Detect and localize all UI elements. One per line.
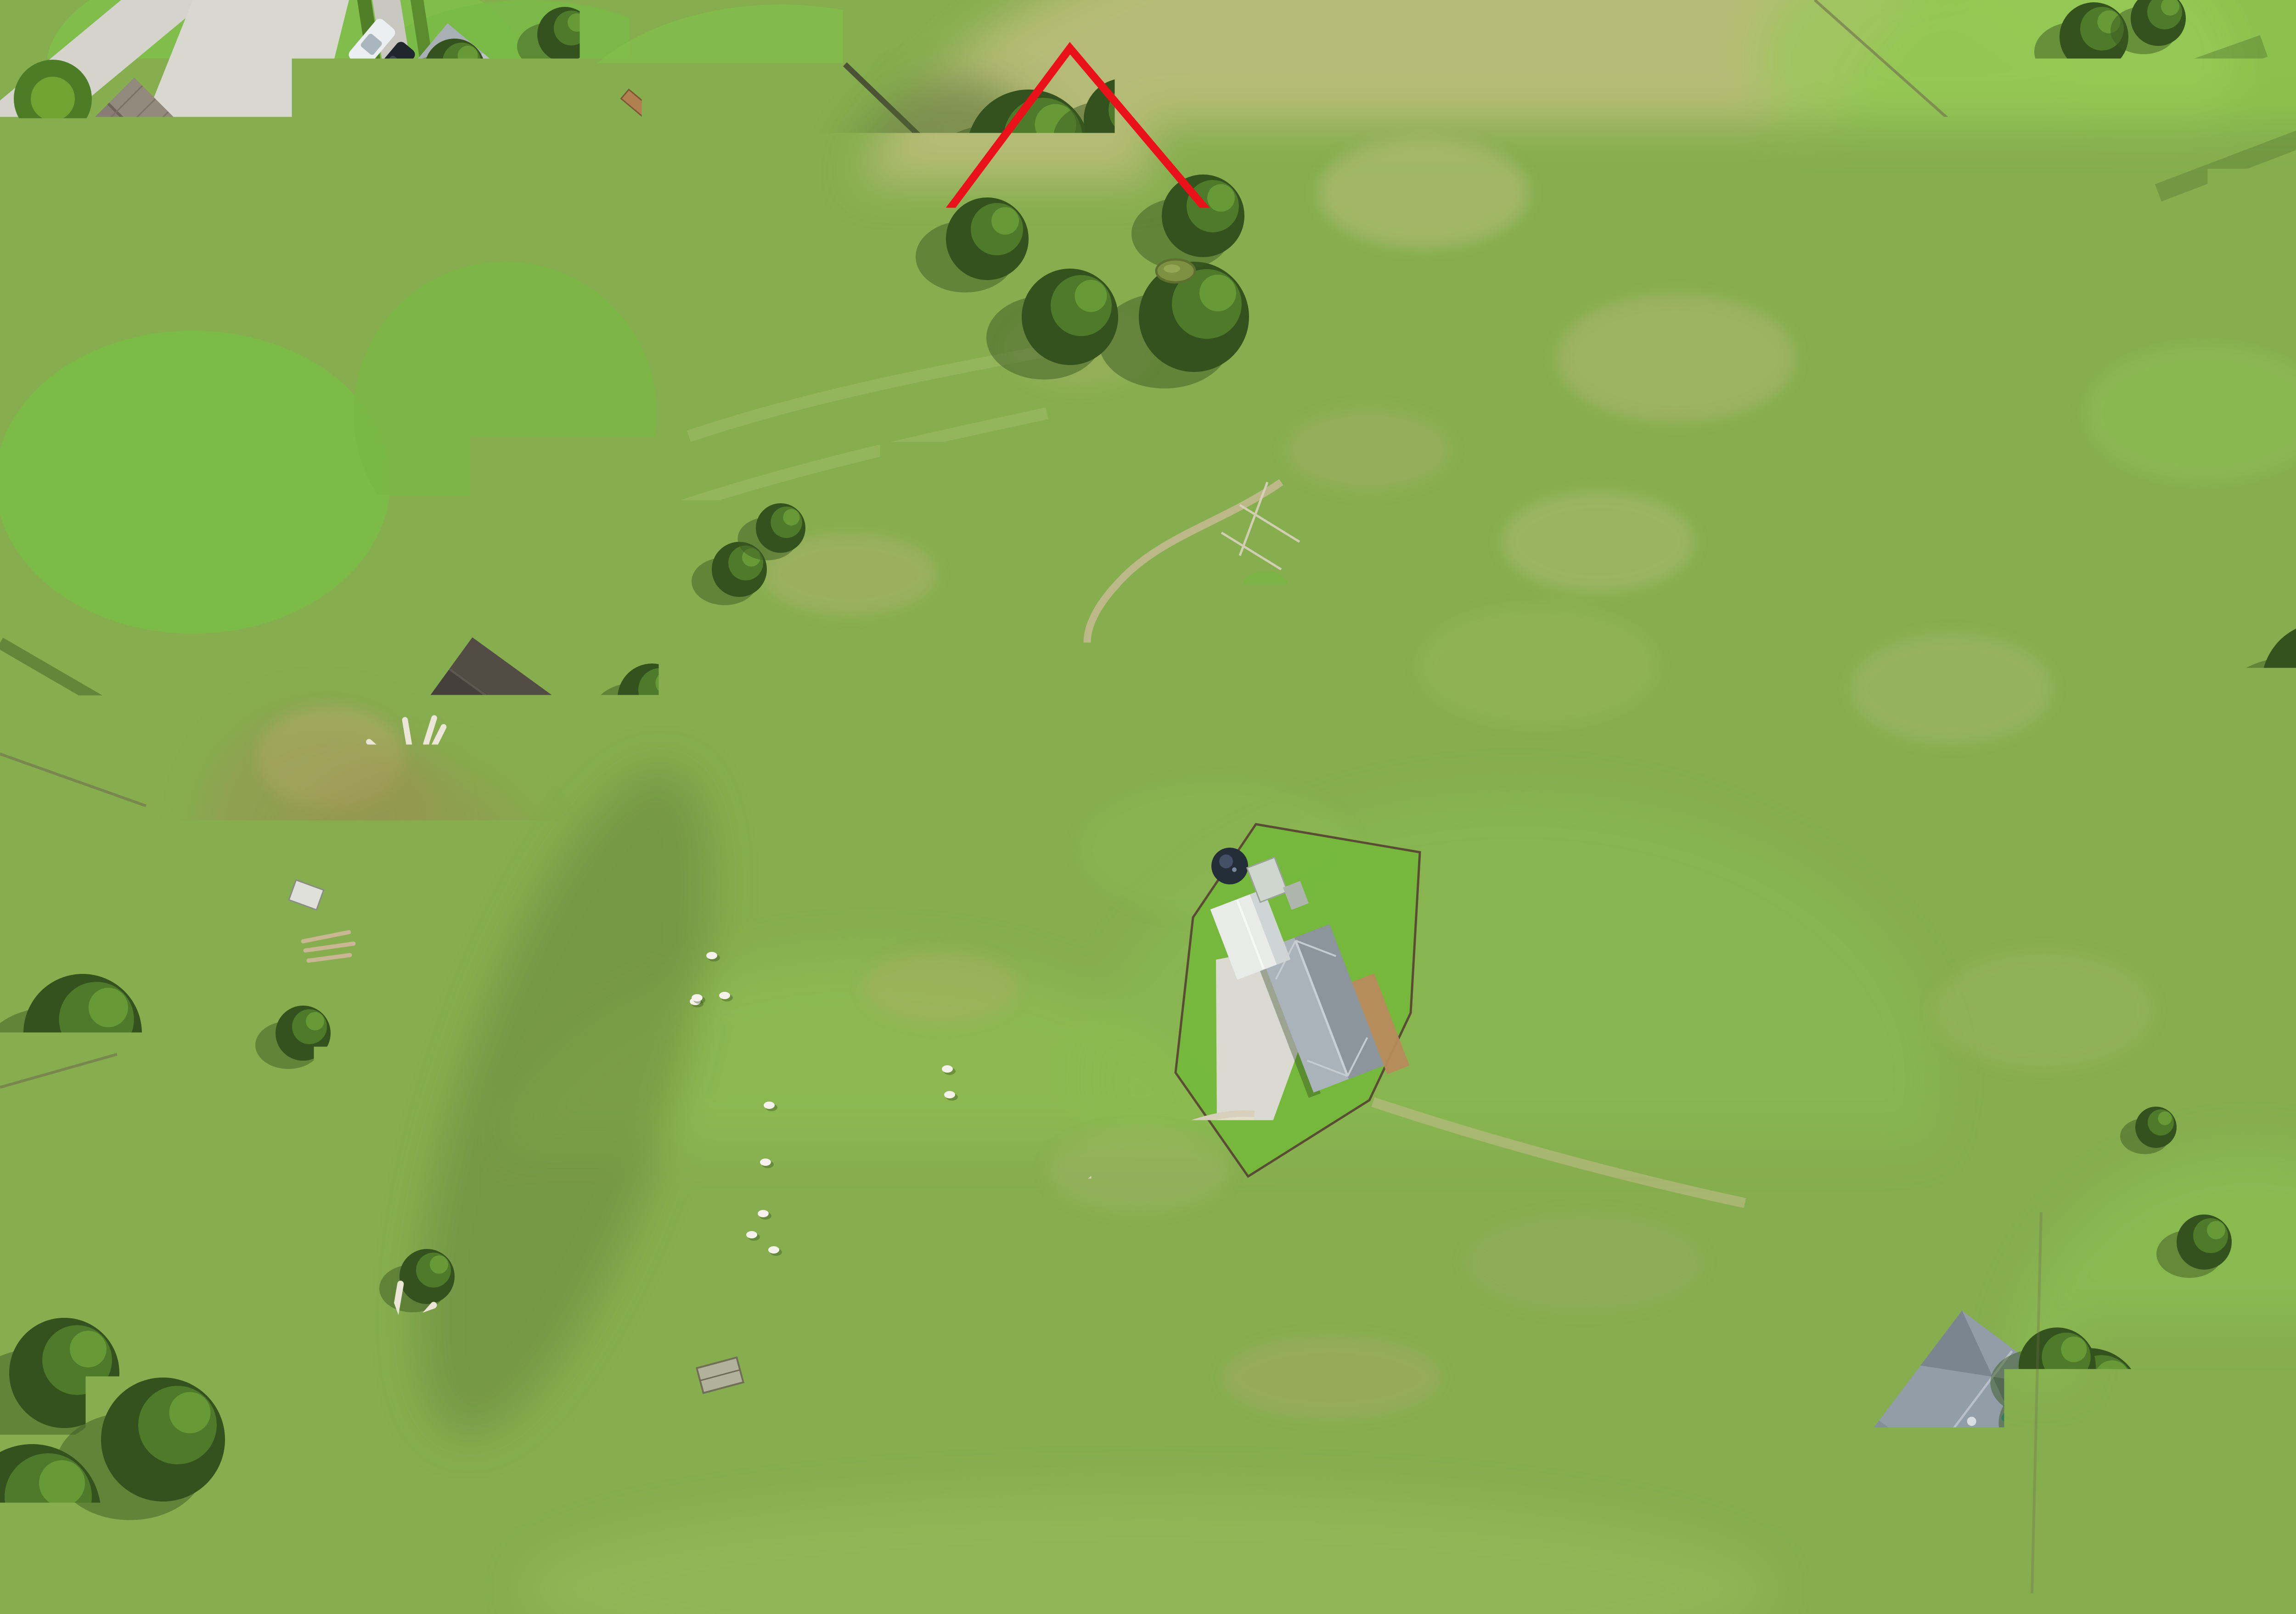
aerial-photo-stage: Boundary line is indicative only Boundar…	[0, 0, 2296, 1614]
pond	[1156, 259, 1195, 282]
garden-red-mulch-2	[1961, 1449, 2016, 1481]
aerial-photo: Boundary line is indicative only Boundar…	[0, 0, 2296, 1614]
wet-patch	[1243, 571, 1287, 597]
water-trough	[1358, 669, 1376, 687]
cow-brown	[1542, 545, 1553, 553]
water-tank	[1211, 848, 1248, 884]
trampoline	[247, 517, 272, 543]
caption-text: Boundary line is indicative only	[46, 1536, 716, 1589]
caption: Boundary line is indicative only Boundar…	[46, 1536, 718, 1592]
